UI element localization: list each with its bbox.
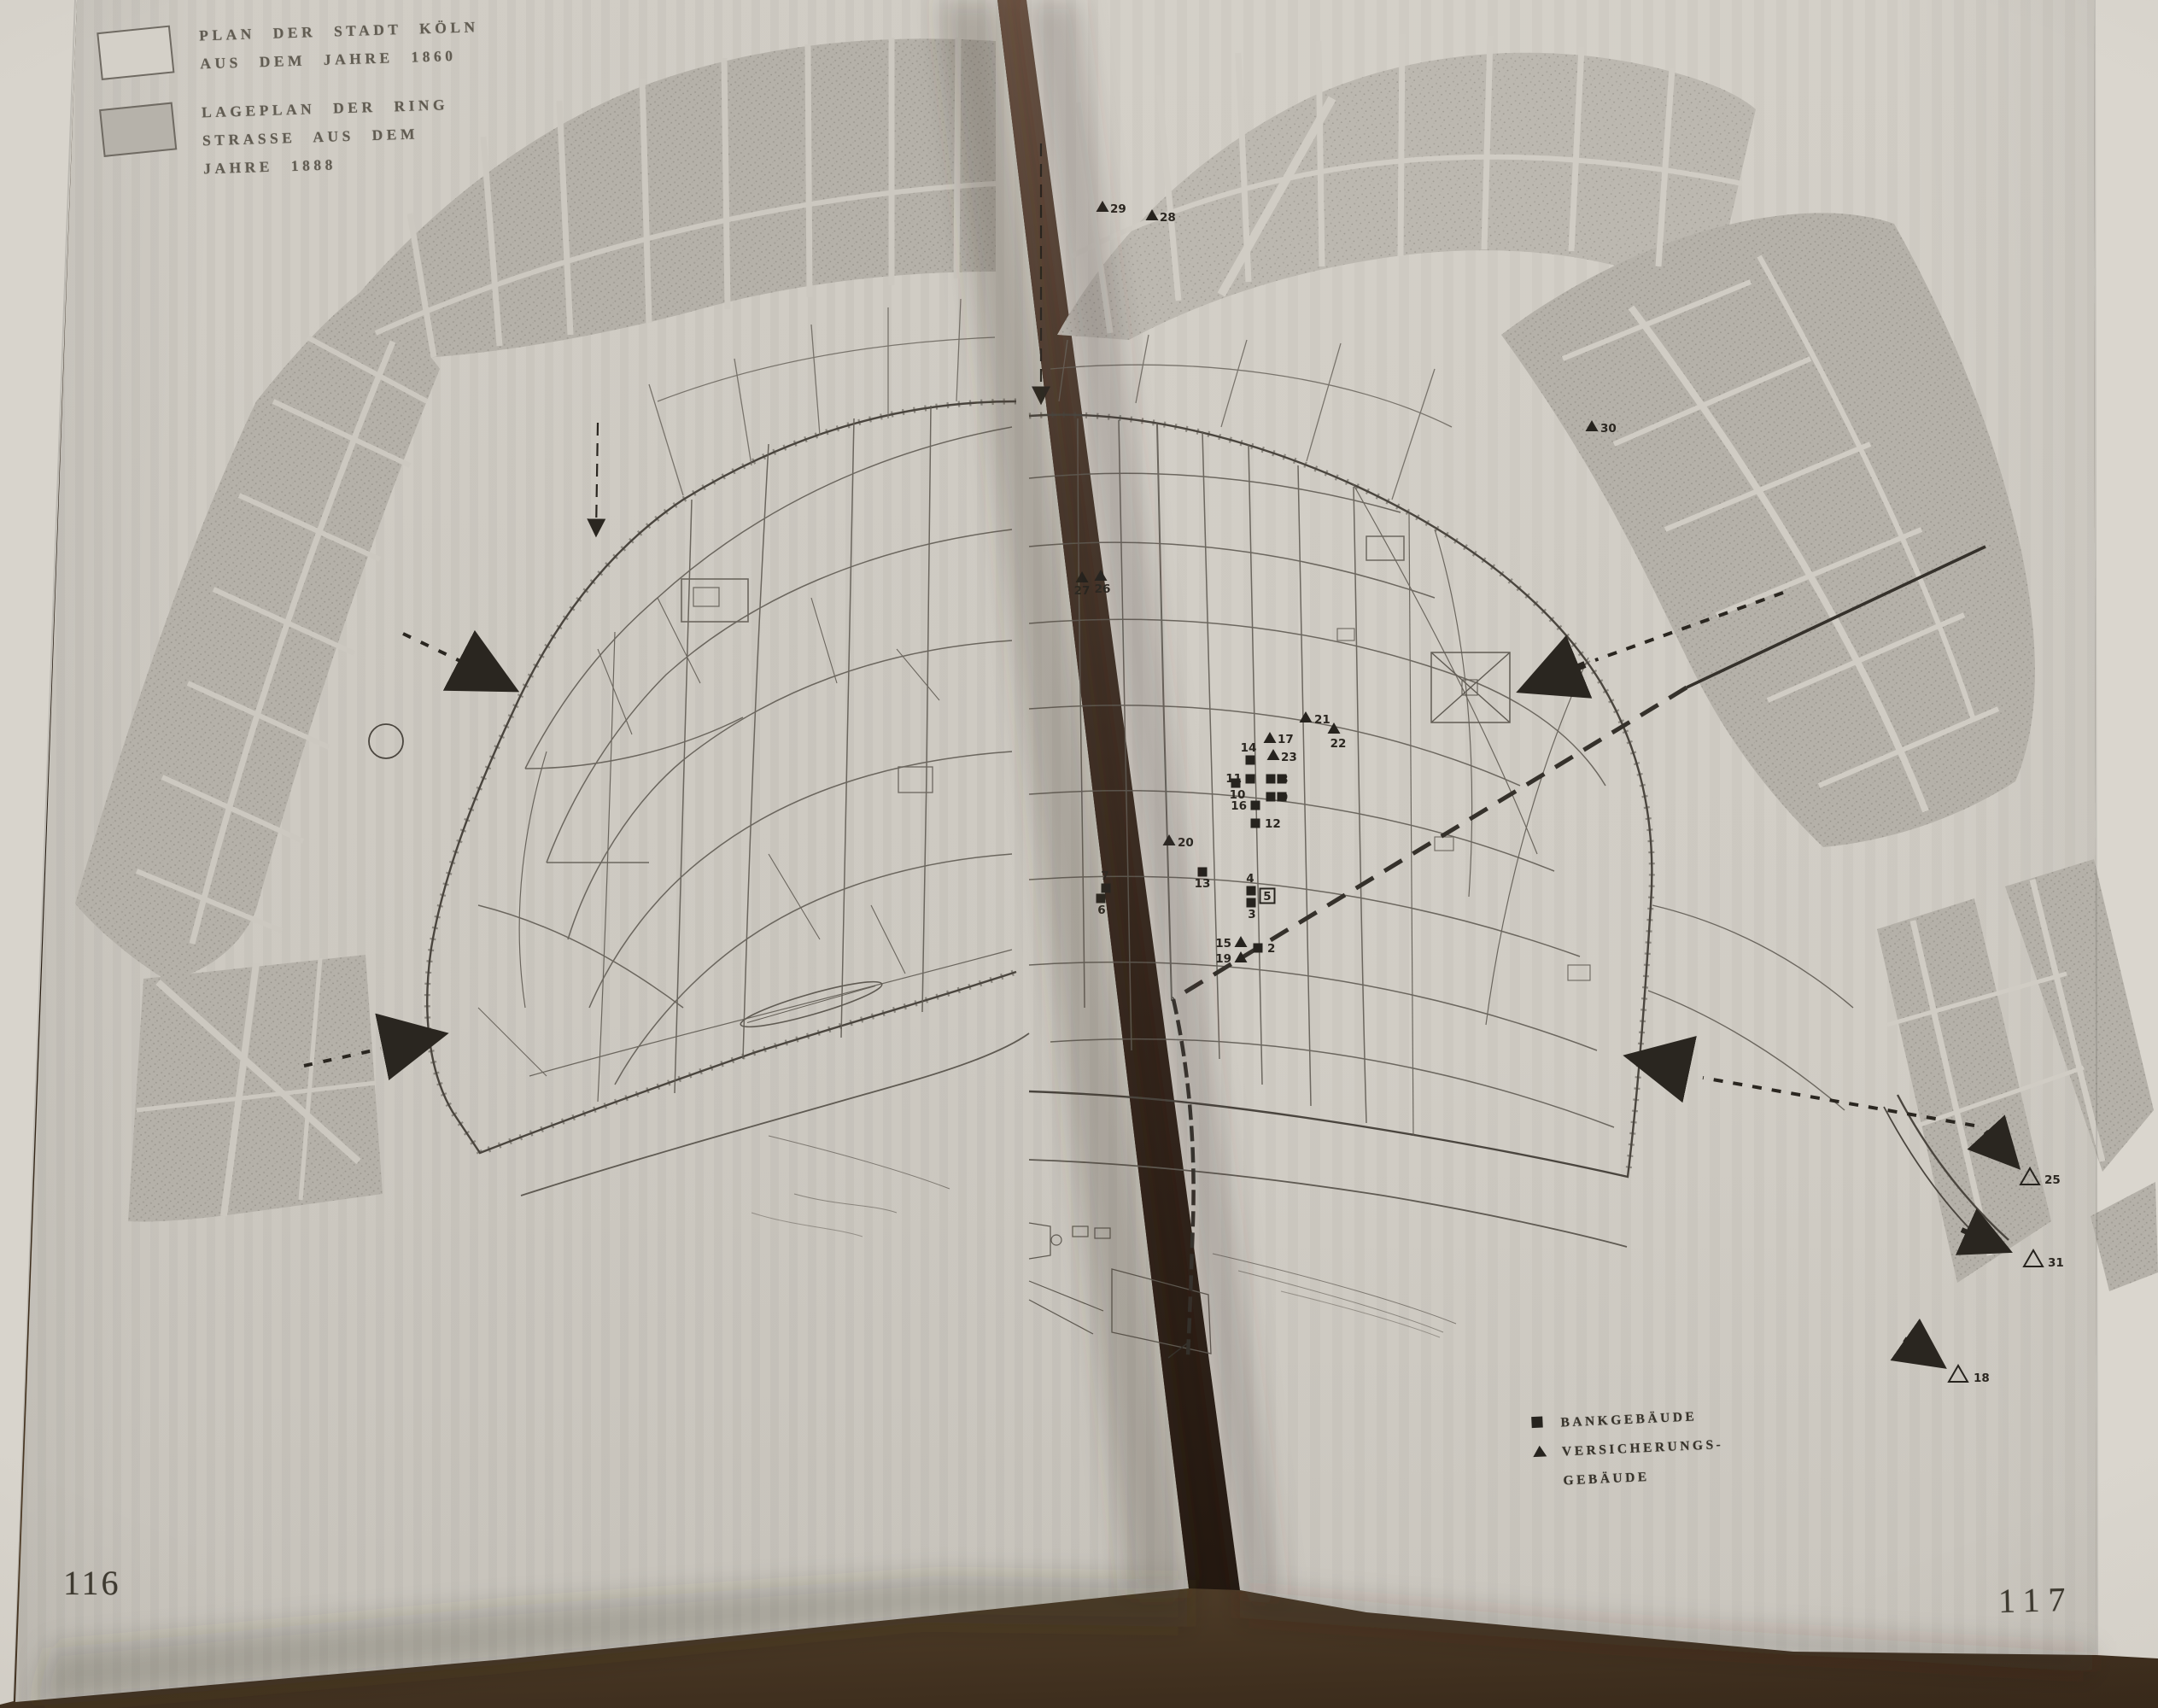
insurance-marker-number: 17	[1278, 733, 1294, 746]
insurance-building-marker	[1267, 749, 1280, 760]
bank-marker-number: 14	[1241, 741, 1257, 755]
outline-marker-number: 31	[2048, 1256, 2064, 1270]
filled-square-icon	[1531, 1409, 1562, 1440]
star-park	[1431, 652, 1510, 722]
bank-building-marker	[1278, 775, 1287, 784]
bank-building-marker	[1198, 868, 1208, 877]
left-map-city-wall	[369, 401, 1016, 1153]
insurance-marker-number: 19	[1215, 952, 1231, 966]
boxed-marker-number: 5	[1263, 890, 1271, 904]
left-map-shaded-ring-areas	[75, 38, 996, 1222]
page-number-116: 116	[63, 1563, 121, 1603]
right-map-shaded-ring-areas	[1057, 34, 2158, 1291]
outline-marker-number: 25	[2044, 1173, 2061, 1187]
left-map-streets	[478, 406, 1012, 1102]
insurance-building-marker	[1235, 936, 1248, 947]
bank-building-marker	[1231, 779, 1241, 788]
bank-marker-number: 2	[1267, 942, 1275, 956]
bank-marker-number: 12	[1265, 817, 1281, 831]
insurance-marker-number: 27	[1074, 584, 1091, 598]
bank-building-marker	[1251, 819, 1260, 828]
outline-triangle-marker	[2024, 1250, 2043, 1266]
bank-building-marker	[1254, 944, 1263, 953]
insurance-marker-number: 28	[1160, 211, 1176, 225]
insurance-marker-number: 23	[1281, 751, 1297, 764]
insurance-building-marker	[1300, 711, 1313, 722]
left-map-1860-1888	[75, 38, 1029, 1237]
filled-triangle-icon	[1532, 1438, 1563, 1469]
bank-building-marker	[1246, 775, 1255, 784]
insurance-marker-number: 21	[1314, 713, 1330, 727]
bank-marker-number: 13	[1195, 877, 1211, 891]
maps-artwork: 1411810916121376432292830272621221723201…	[0, 0, 2158, 1708]
bank-marker-number: 4	[1246, 872, 1254, 886]
outline-marker-number: 18	[1974, 1372, 1990, 1385]
insurance-marker-number: 30	[1600, 422, 1617, 436]
bank-building-marker	[1247, 886, 1256, 896]
bank-building-marker	[1247, 898, 1256, 908]
insurance-building-marker	[1076, 571, 1089, 582]
page-number-117: 117	[1997, 1579, 2074, 1621]
legend-item-1888: LAGEPLAN DER RING STRASSE AUS DEM JAHRE …	[101, 86, 599, 186]
boat-outline	[738, 974, 885, 1034]
left-map-suburb-streets	[649, 299, 995, 495]
insurance-marker-number: 29	[1110, 202, 1126, 216]
left-map-legend: PLAN DER STADT KÖLN AUS DEM JAHRE 1860 L…	[98, 9, 599, 207]
bank-building-marker	[1266, 775, 1276, 784]
bank-marker-number: 3	[1248, 908, 1255, 921]
outline-triangle-marker	[1949, 1366, 1968, 1382]
bank-building-marker	[1246, 756, 1255, 765]
book-photo: 1411810916121376432292830272621221723201…	[0, 0, 2158, 1708]
insurance-building-marker	[1264, 732, 1277, 743]
bank-building-marker	[1278, 793, 1287, 802]
insurance-marker-number: 22	[1330, 737, 1347, 751]
bank-marker-number: 16	[1231, 799, 1247, 813]
legend-swatch-shaded	[99, 102, 177, 157]
right-map-legend: BANKGEBÄUDE VERSICHERUNGS- GEBÄUDE	[1531, 1401, 1726, 1497]
bank-building-marker	[1266, 793, 1276, 802]
left-map-rhine-river	[521, 974, 1029, 1237]
bank-building-marker	[1251, 801, 1260, 810]
legend-swatch-outline	[96, 26, 174, 80]
insurance-marker-number: 15	[1215, 937, 1231, 951]
